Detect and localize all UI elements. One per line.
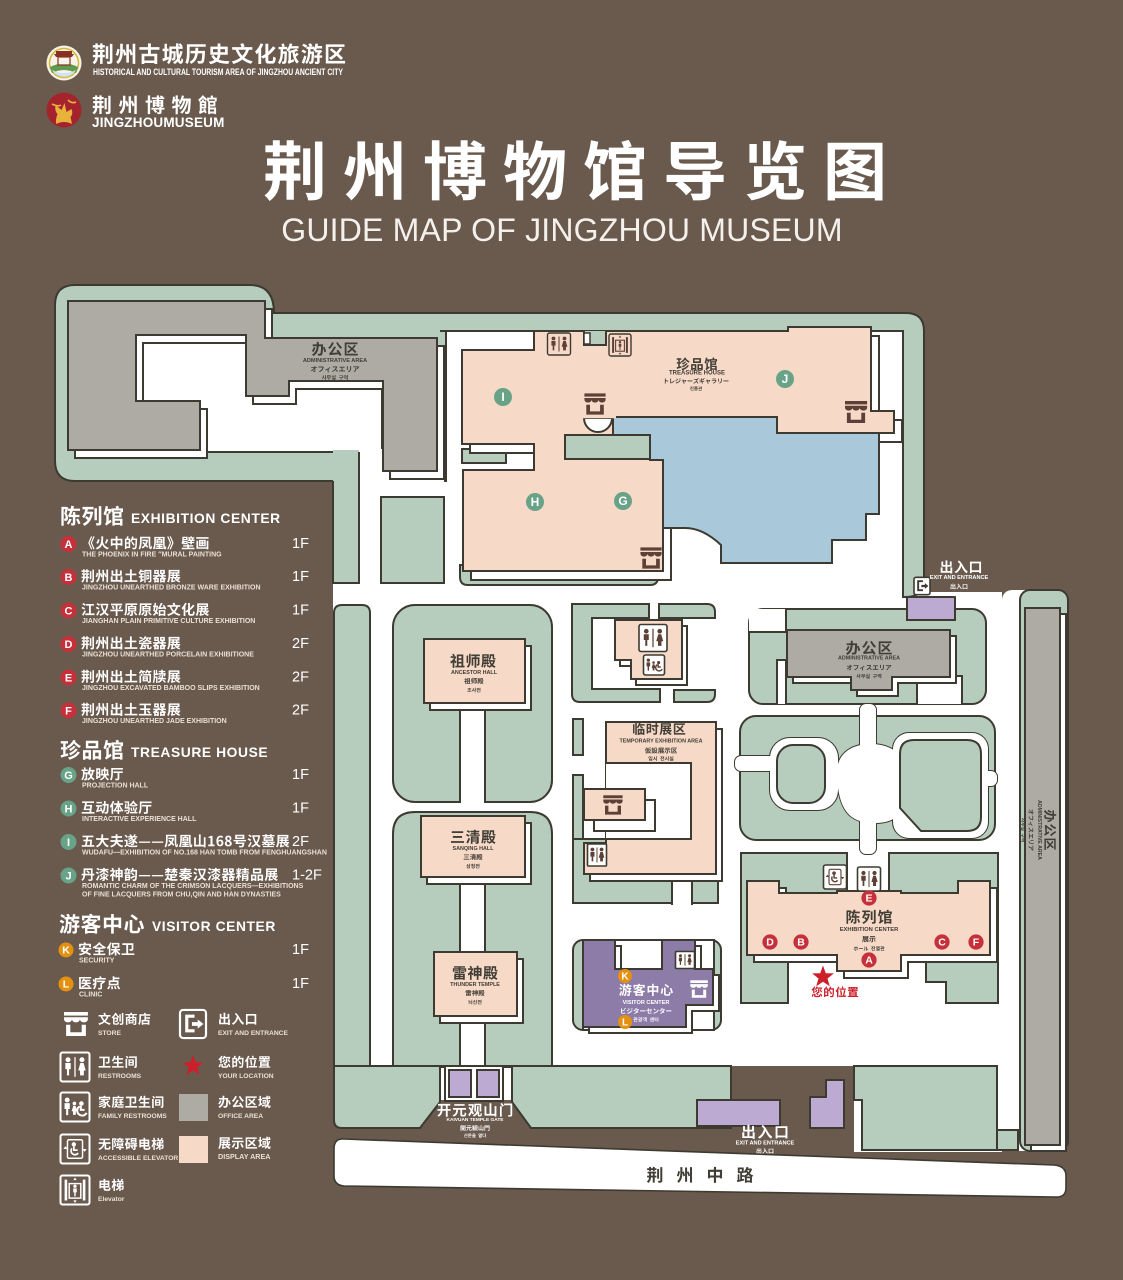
svg-text:PROJECTION HALL: PROJECTION HALL	[82, 783, 149, 790]
svg-text:1F: 1F	[292, 767, 309, 783]
svg-text:J: J	[65, 870, 71, 882]
svg-text:SANQING HALL: SANQING HALL	[452, 846, 494, 852]
svg-text:ADMINISTRATIVE AREA: ADMINISTRATIVE AREA	[838, 656, 900, 662]
svg-text:GUIDE MAP OF JINGZHOU MUSEUM: GUIDE MAP OF JINGZHOU MUSEUM	[281, 212, 842, 248]
svg-text:SECURITY: SECURITY	[79, 958, 115, 965]
svg-text:2F: 2F	[292, 636, 309, 652]
svg-text:EXIT AND ENTRANCE: EXIT AND ENTRANCE	[736, 1141, 795, 1147]
svg-text:1F: 1F	[292, 603, 309, 619]
svg-text:B: B	[65, 572, 73, 584]
svg-text:L: L	[622, 1018, 628, 1029]
svg-text:ADMINISTRATIVE AREA: ADMINISTRATIVE AREA	[1036, 800, 1042, 860]
svg-text:ACCESSIBLE ELEVATOR: ACCESSIBLE ELEVATOR	[98, 1155, 178, 1162]
svg-text:WUDAFU—EXHIBITION OF NO.168 HA: WUDAFU—EXHIBITION OF NO.168 HAN TOMB FRO…	[82, 850, 327, 857]
svg-text:EXIT AND ENTRANCE: EXIT AND ENTRANCE	[218, 1030, 289, 1037]
svg-text:F: F	[65, 705, 72, 717]
svg-text:EXHIBITION CENTER: EXHIBITION CENTER	[131, 511, 281, 526]
svg-text:A: A	[865, 955, 873, 967]
svg-text:1F: 1F	[292, 536, 309, 552]
svg-text:ROMANTIC CHARM OF THE CRIMSON: ROMANTIC CHARM OF THE CRIMSON LACQUERS—E…	[82, 883, 304, 890]
svg-text:D: D	[766, 937, 774, 949]
svg-text:TREASURE HOUSE: TREASURE HOUSE	[131, 745, 268, 760]
svg-text:JIANGHAN PLAIN PRIMITIVE CULTU: JIANGHAN PLAIN PRIMITIVE CULTURE EXHIBIT…	[82, 618, 255, 625]
svg-text:A: A	[65, 539, 73, 551]
svg-text:JINGZHOU UNEARTHED BRONZE WARE: JINGZHOU UNEARTHED BRONZE WARE EXHIBITIO…	[82, 585, 261, 592]
svg-text:F: F	[973, 937, 980, 949]
svg-text:HISTORICAL AND CULTURAL TOURIS: HISTORICAL AND CULTURAL TOURISM AREA OF …	[93, 67, 343, 78]
svg-text:E: E	[65, 672, 72, 684]
svg-text:K: K	[621, 972, 629, 983]
svg-text:JINGZHOU UNEARTHED PORCELAIN E: JINGZHOU UNEARTHED PORCELAIN EXHIBITIONE	[82, 652, 254, 659]
svg-text:1F: 1F	[292, 801, 309, 817]
svg-text:YOUR LOCATION: YOUR LOCATION	[218, 1073, 274, 1080]
svg-text:H: H	[531, 495, 540, 509]
svg-text:H: H	[65, 803, 73, 815]
svg-text:OFFICE AREA: OFFICE AREA	[218, 1113, 263, 1120]
svg-text:2F: 2F	[292, 670, 309, 686]
svg-text:EXHIBITION CENTER: EXHIBITION CENTER	[840, 927, 899, 933]
svg-text:THE PHOENIX IN FIRE ″MURAL PAI: THE PHOENIX IN FIRE ″MURAL PAINTING	[82, 552, 222, 559]
svg-text:ADMINISTRATIVE AREA: ADMINISTRATIVE AREA	[303, 358, 367, 364]
svg-text:JINGZHOUMUSEUM: JINGZHOUMUSEUM	[92, 115, 225, 130]
svg-text:VISITOR CENTER: VISITOR CENTER	[623, 1000, 670, 1006]
svg-text:OF FINE LACQUERS FROM CHU,QIN: OF FINE LACQUERS FROM CHU,QIN AND HAN DY…	[82, 892, 281, 899]
svg-text:JINGZHOU UNEARTHED JADE EXHIBI: JINGZHOU UNEARTHED JADE EXHIBITION	[82, 718, 227, 725]
svg-text:1F: 1F	[292, 569, 309, 585]
svg-text:1F: 1F	[292, 942, 309, 958]
svg-text:G: G	[64, 770, 73, 782]
svg-text:FAMILY RESTROOMS: FAMILY RESTROOMS	[98, 1113, 167, 1120]
svg-text:C: C	[938, 937, 946, 949]
svg-text:EXIT AND ENTRANCE: EXIT AND ENTRANCE	[930, 575, 989, 581]
svg-text:STORE: STORE	[98, 1030, 121, 1037]
svg-text:I: I	[501, 390, 504, 404]
svg-text:DISPLAY AREA: DISPLAY AREA	[218, 1152, 270, 1161]
svg-text:VISITOR CENTER: VISITOR CENTER	[152, 919, 276, 934]
svg-text:THUNDER TEMPLE: THUNDER TEMPLE	[450, 982, 500, 988]
svg-text:TREASURE HOUSE: TREASURE HOUSE	[669, 371, 725, 377]
svg-text:KAIVUAN TEMPLE GATE: KAIVUAN TEMPLE GATE	[447, 1117, 505, 1123]
svg-text:CLINIC: CLINIC	[79, 992, 102, 999]
svg-text:B: B	[797, 937, 805, 949]
svg-text:1-2F: 1-2F	[292, 868, 322, 884]
svg-text:D: D	[65, 639, 73, 651]
svg-text:INTERACTIVE EXPERIENCE HALL: INTERACTIVE EXPERIENCE HALL	[82, 816, 197, 823]
svg-text:C: C	[65, 605, 73, 617]
svg-text:RESTROOMS: RESTROOMS	[98, 1073, 142, 1080]
svg-text:K: K	[62, 945, 70, 957]
svg-text:L: L	[63, 979, 70, 991]
svg-text:Elevator: Elevator	[98, 1196, 125, 1203]
svg-text:G: G	[618, 494, 627, 508]
svg-text:ANCESTOR HALL: ANCESTOR HALL	[451, 670, 498, 676]
svg-text:J: J	[782, 372, 789, 386]
svg-text:I: I	[67, 837, 70, 849]
svg-text:2F: 2F	[292, 703, 309, 719]
svg-text:1F: 1F	[292, 976, 309, 992]
svg-text:E: E	[865, 893, 872, 905]
svg-text:TEMPORARY EXHIBITION AREA: TEMPORARY EXHIBITION AREA	[619, 739, 702, 745]
svg-text:2F: 2F	[292, 834, 309, 850]
svg-text:JINGZHOU EXCAVATED BAMBOO SLIP: JINGZHOU EXCAVATED BAMBOO SLIPS EXHIBITI…	[82, 685, 260, 692]
